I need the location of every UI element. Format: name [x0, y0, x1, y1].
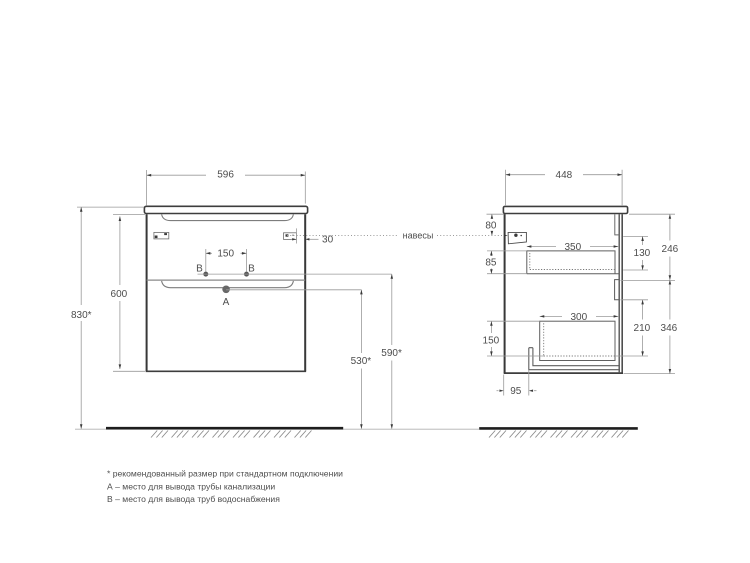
- svg-text:150: 150: [217, 249, 234, 260]
- svg-text:навесы: навесы: [403, 231, 434, 241]
- svg-text:530*: 530*: [351, 356, 372, 367]
- svg-text:596: 596: [217, 170, 234, 181]
- svg-text:350: 350: [564, 242, 581, 253]
- svg-text:А: А: [223, 297, 230, 308]
- svg-text:* рекомендованный размер при с: * рекомендованный размер при стандартном…: [107, 469, 343, 479]
- svg-text:95: 95: [510, 386, 522, 397]
- svg-text:300: 300: [570, 312, 587, 323]
- svg-text:30: 30: [322, 234, 334, 245]
- svg-text:210: 210: [634, 323, 651, 334]
- svg-text:600: 600: [111, 289, 128, 300]
- svg-text:590*: 590*: [381, 348, 402, 359]
- svg-text:B: B: [248, 264, 255, 275]
- svg-text:346: 346: [661, 323, 678, 334]
- svg-text:130: 130: [634, 248, 651, 259]
- svg-text:448: 448: [556, 170, 573, 181]
- svg-text:85: 85: [485, 258, 497, 269]
- svg-text:246: 246: [662, 244, 679, 255]
- svg-text:А – место для вывода трубы кан: А – место для вывода трубы канализации: [107, 482, 275, 492]
- svg-text:B: B: [196, 264, 203, 275]
- svg-text:В – место для вывода труб водо: В – место для вывода труб водоснабжения: [107, 494, 280, 504]
- svg-text:80: 80: [485, 221, 497, 232]
- svg-text:150: 150: [483, 336, 500, 347]
- svg-text:830*: 830*: [71, 310, 92, 321]
